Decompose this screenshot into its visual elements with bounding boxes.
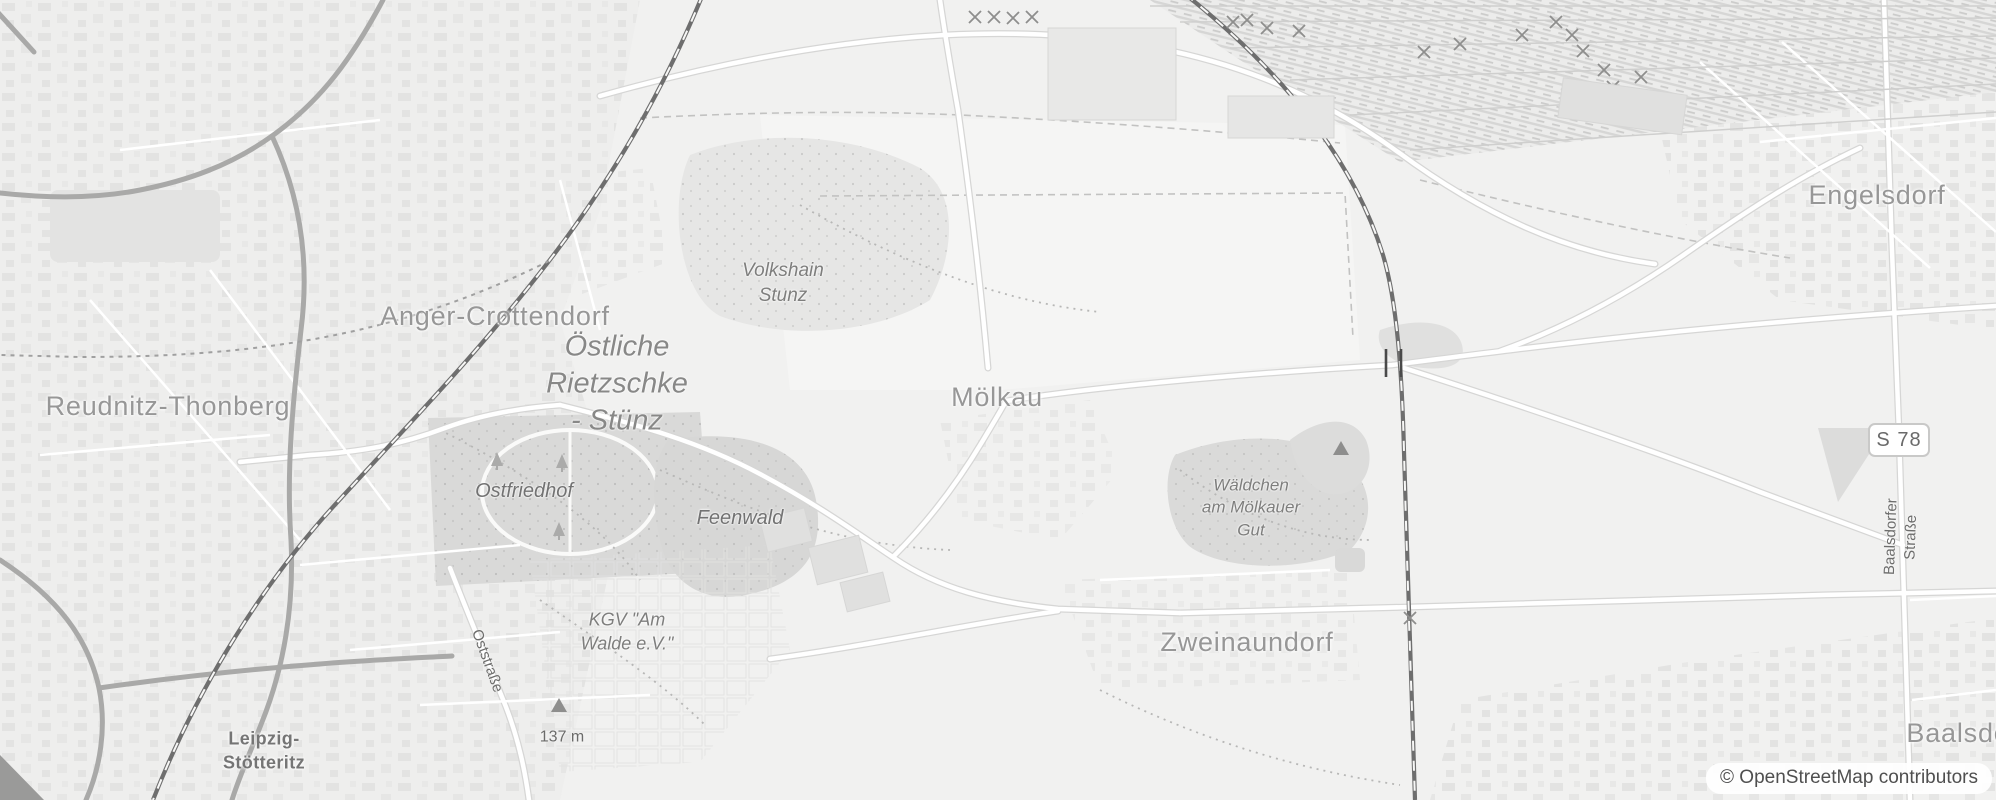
road-shield-s78: S 78 — [1868, 423, 1930, 457]
attribution[interactable]: © OpenStreetMap contributors — [1706, 763, 1992, 794]
pond — [1335, 548, 1365, 572]
map-canvas[interactable]: Engelsdorf Anger-Crottendorf Reudnitz-Th… — [0, 0, 1996, 800]
park-area — [50, 190, 220, 262]
map-graphics — [0, 0, 1996, 800]
attribution-text: © OpenStreetMap contributors — [1720, 767, 1978, 788]
kgv-allotments — [530, 545, 790, 772]
road-shield-text: S 78 — [1876, 429, 1921, 452]
area-fills — [0, 0, 1996, 800]
